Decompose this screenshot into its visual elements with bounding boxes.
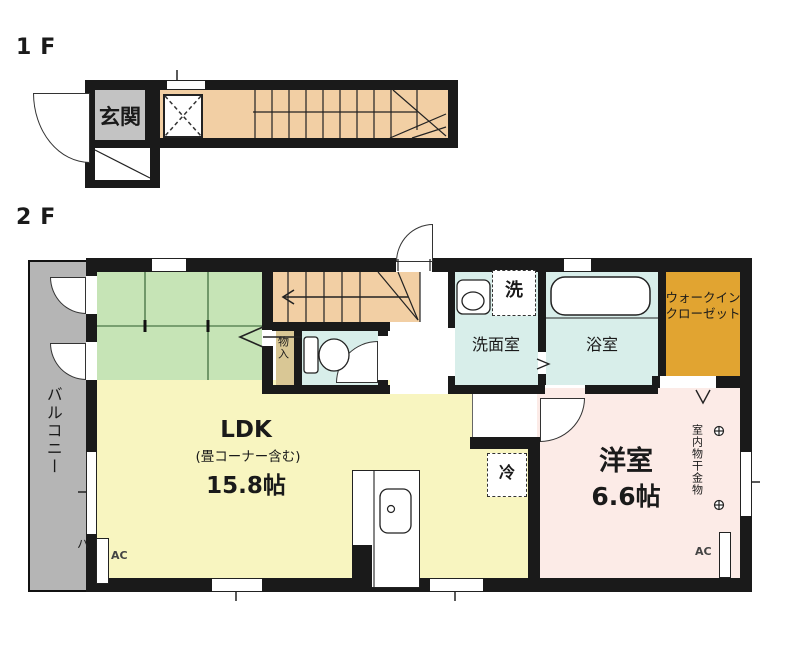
ldk-note: (畳コーナー含む) xyxy=(195,450,300,464)
door-opening xyxy=(448,328,455,376)
window xyxy=(86,452,97,534)
wall xyxy=(272,322,390,331)
stairs-1f-floor xyxy=(160,90,448,138)
wic-label-line2: クローゼット xyxy=(665,307,740,320)
wall xyxy=(585,385,658,394)
wall xyxy=(88,578,752,592)
wall xyxy=(85,80,458,90)
hall xyxy=(472,394,537,437)
wall xyxy=(85,180,160,188)
window xyxy=(212,578,262,592)
window xyxy=(167,80,205,90)
floor-hatch xyxy=(163,94,203,138)
ac-unit xyxy=(719,532,731,578)
ac-label: AC xyxy=(111,550,128,562)
ldk-label: LDK xyxy=(220,418,272,442)
bathroom-label: 浴室 xyxy=(586,337,618,354)
entrance-step xyxy=(95,148,150,180)
wall xyxy=(145,80,160,148)
fridge-mark: 冷 xyxy=(499,465,515,482)
wall xyxy=(658,272,666,385)
drying-note: 室内物干金物 xyxy=(691,424,703,496)
window xyxy=(564,258,591,272)
room-ldk xyxy=(97,380,528,578)
wall xyxy=(352,545,372,588)
window xyxy=(430,578,483,592)
wall xyxy=(528,437,540,578)
washer-mark: 洗 xyxy=(505,282,523,301)
ldk-size: 15.8帖 xyxy=(206,474,286,498)
window xyxy=(152,258,186,272)
balcony-label: バルコニー xyxy=(44,386,61,476)
wall xyxy=(448,80,458,148)
room-wic xyxy=(666,272,740,376)
wall xyxy=(294,331,302,385)
bedroom-label: 洋室 xyxy=(599,448,653,476)
room-bathroom xyxy=(546,272,658,385)
floor-plan: 1F 玄関 2F xyxy=(0,0,800,661)
ac-label: AC xyxy=(695,546,712,558)
washroom-label: 洗面室 xyxy=(472,337,520,354)
wall xyxy=(93,140,160,148)
ac-unit xyxy=(96,538,109,584)
floor2-label: 2F xyxy=(16,206,64,229)
bath-door-opening xyxy=(538,352,546,374)
wic-opening xyxy=(660,376,716,388)
bedroom-size: 6.6帖 xyxy=(591,484,660,510)
window xyxy=(740,452,752,516)
floor1-label: 1F xyxy=(16,36,64,59)
wall xyxy=(160,138,458,148)
wall xyxy=(262,385,390,394)
stairs-2f-floor xyxy=(272,272,420,322)
door-opening xyxy=(378,336,388,380)
door-arc xyxy=(396,224,433,262)
wic-label-line1: ウォークイン xyxy=(665,291,740,304)
entrance-door-arc xyxy=(33,93,90,163)
storage-label: 物入 xyxy=(277,336,289,360)
wall xyxy=(448,385,545,394)
door-opening xyxy=(86,276,97,314)
wall xyxy=(740,258,752,592)
door-opening xyxy=(390,385,448,394)
wall xyxy=(262,346,273,390)
room-tatami-corner xyxy=(97,272,262,380)
hall xyxy=(390,322,455,385)
balcony-mark: ハ xyxy=(77,538,89,551)
door-opening xyxy=(86,342,97,380)
